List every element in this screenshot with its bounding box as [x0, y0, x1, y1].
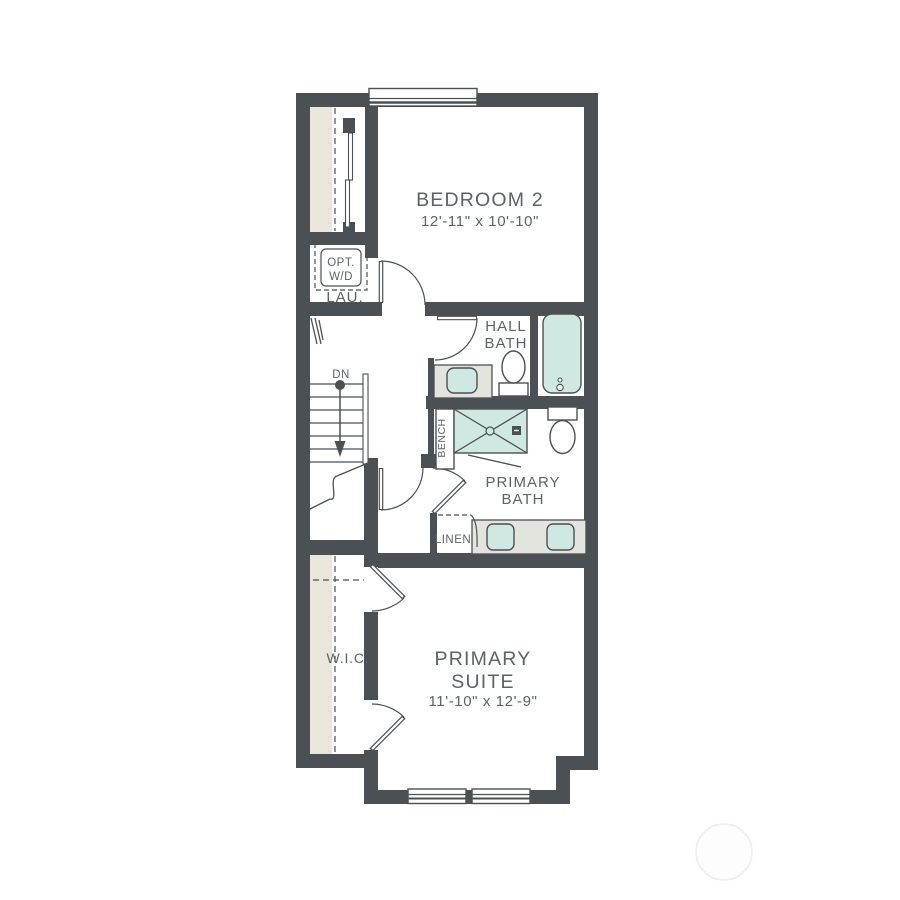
bedroom2-dims: 12'-11" x 10'-10"	[421, 213, 539, 230]
primary-bath-door	[433, 468, 465, 513]
dn-start-dot	[335, 380, 345, 390]
bottom-window-right	[472, 789, 530, 804]
hall-to-suite-door	[381, 468, 423, 510]
bathtub	[543, 314, 581, 393]
primary-bath-label-2: BATH	[502, 491, 545, 508]
shower	[436, 409, 527, 469]
top-window	[369, 89, 477, 107]
hall-bath-toilet	[499, 351, 528, 396]
watermark-circle	[696, 824, 752, 880]
closet-slider-panel	[349, 133, 353, 180]
sink	[487, 524, 514, 550]
primary-toilet	[548, 407, 577, 454]
dn-label: DN	[332, 369, 350, 381]
stairs	[310, 318, 368, 509]
shower-door	[468, 455, 521, 467]
linen-label: LINEN	[435, 534, 471, 546]
bedroom2-door	[381, 261, 425, 305]
primary-vanity	[472, 520, 586, 554]
wall-hatch-marks	[311, 318, 323, 344]
wic-label: W.I.C.	[327, 650, 370, 666]
hall-bath-vanity	[434, 365, 492, 398]
floor-plan-svg: BEDROOM 2 12'-11" x 10'-10" HALL BATH PR…	[0, 0, 900, 900]
bedroom2-label: BEDROOM 2	[416, 189, 544, 211]
shower-drain	[486, 427, 494, 435]
sink	[547, 524, 574, 550]
primary-bath-label-1: PRIMARY	[485, 474, 560, 491]
hall-bath-label-2: BATH	[485, 335, 528, 352]
wic-door-upper	[371, 565, 404, 611]
closet-slider-panel	[346, 180, 350, 227]
floor-plan-canvas: BEDROOM 2 12'-11" x 10'-10" HALL BATH PR…	[0, 0, 900, 900]
bench-label: BENCH	[436, 418, 448, 457]
laundry-label: LAU.	[326, 289, 363, 306]
primary-suite-label-1: PRIMARY	[435, 648, 532, 670]
primary-suite-dims: 11'-10" x 12'-9"	[428, 693, 537, 710]
hall-bath-label-1: HALL	[485, 318, 527, 335]
wic-door-lower	[371, 704, 404, 750]
stair-rail	[363, 374, 368, 464]
sink	[447, 368, 477, 393]
washer-dryer-label-2: W/D	[329, 271, 353, 283]
stair-break-line	[310, 463, 368, 509]
hall-bath-door	[435, 318, 477, 360]
primary-suite-label-2: SUITE	[451, 671, 514, 693]
bottom-window-left	[408, 789, 466, 804]
washer-dryer-label-1: OPT.	[327, 257, 355, 269]
